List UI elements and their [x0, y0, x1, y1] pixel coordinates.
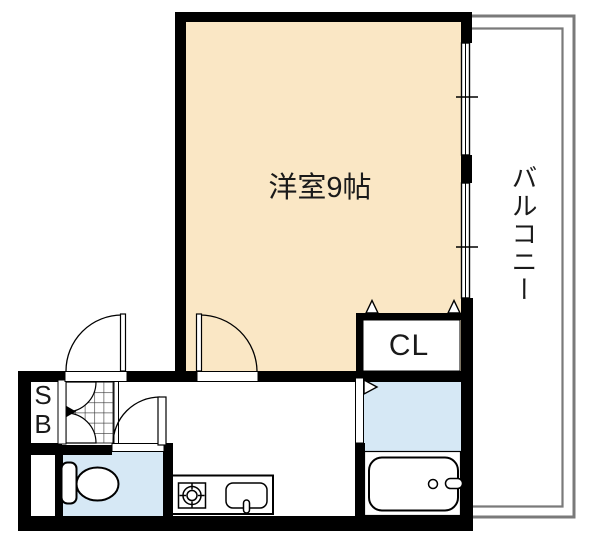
wall-right-between-windows [461, 155, 472, 183]
toilet-tank [62, 463, 77, 504]
wall-shoebox-bottom [28, 443, 62, 455]
wall-toilet-top [55, 445, 112, 455]
balcony-label: バルコニー [505, 164, 542, 349]
bathtub [369, 458, 458, 511]
wall-mid-band-b [127, 371, 197, 382]
wall-right-upper [461, 12, 472, 43]
shoebox-label-line1: S [29, 381, 57, 410]
wall-closet-left [356, 313, 363, 382]
toilet-door-leaf [158, 397, 166, 445]
wall-bathroom-left [355, 443, 365, 516]
kitchen-counter [172, 476, 273, 515]
kitchen-sink-icon [226, 483, 267, 513]
western-room-door-leaf [197, 314, 202, 371]
bathtub-icon [369, 458, 463, 511]
bathroom [365, 452, 463, 516]
toilet-doorway [112, 444, 164, 452]
toilet-bowl [77, 468, 119, 501]
entrance-door-leaf [121, 314, 126, 371]
western-room-doorway [197, 372, 258, 382]
floor-plan: 洋室9帖 バルコニー CL S B [0, 0, 607, 541]
shoebox-label: S B [29, 381, 57, 439]
wall-closet-top [356, 313, 472, 320]
washroom-floor [364, 375, 461, 451]
washroom-door-panel [356, 378, 364, 443]
wall-room-left [175, 12, 186, 382]
entrance-doorway [65, 372, 127, 382]
bathtub-drain [429, 480, 438, 489]
wall-right-lower [461, 298, 473, 531]
western-room-label: 洋室9帖 [210, 164, 430, 206]
wall-top [175, 12, 472, 22]
bathtub-faucet [446, 479, 463, 489]
entrance-door-arc [66, 315, 122, 371]
shoebox-door-panel [58, 380, 66, 444]
entrance-tile [63, 382, 119, 443]
sink-faucet [244, 500, 250, 513]
wall-bottom [18, 516, 473, 531]
gas-stove-icon [179, 483, 206, 508]
closet-label: CL [368, 329, 450, 363]
shoebox-label-line2: B [29, 410, 57, 439]
toilet-door-arc [113, 397, 160, 444]
